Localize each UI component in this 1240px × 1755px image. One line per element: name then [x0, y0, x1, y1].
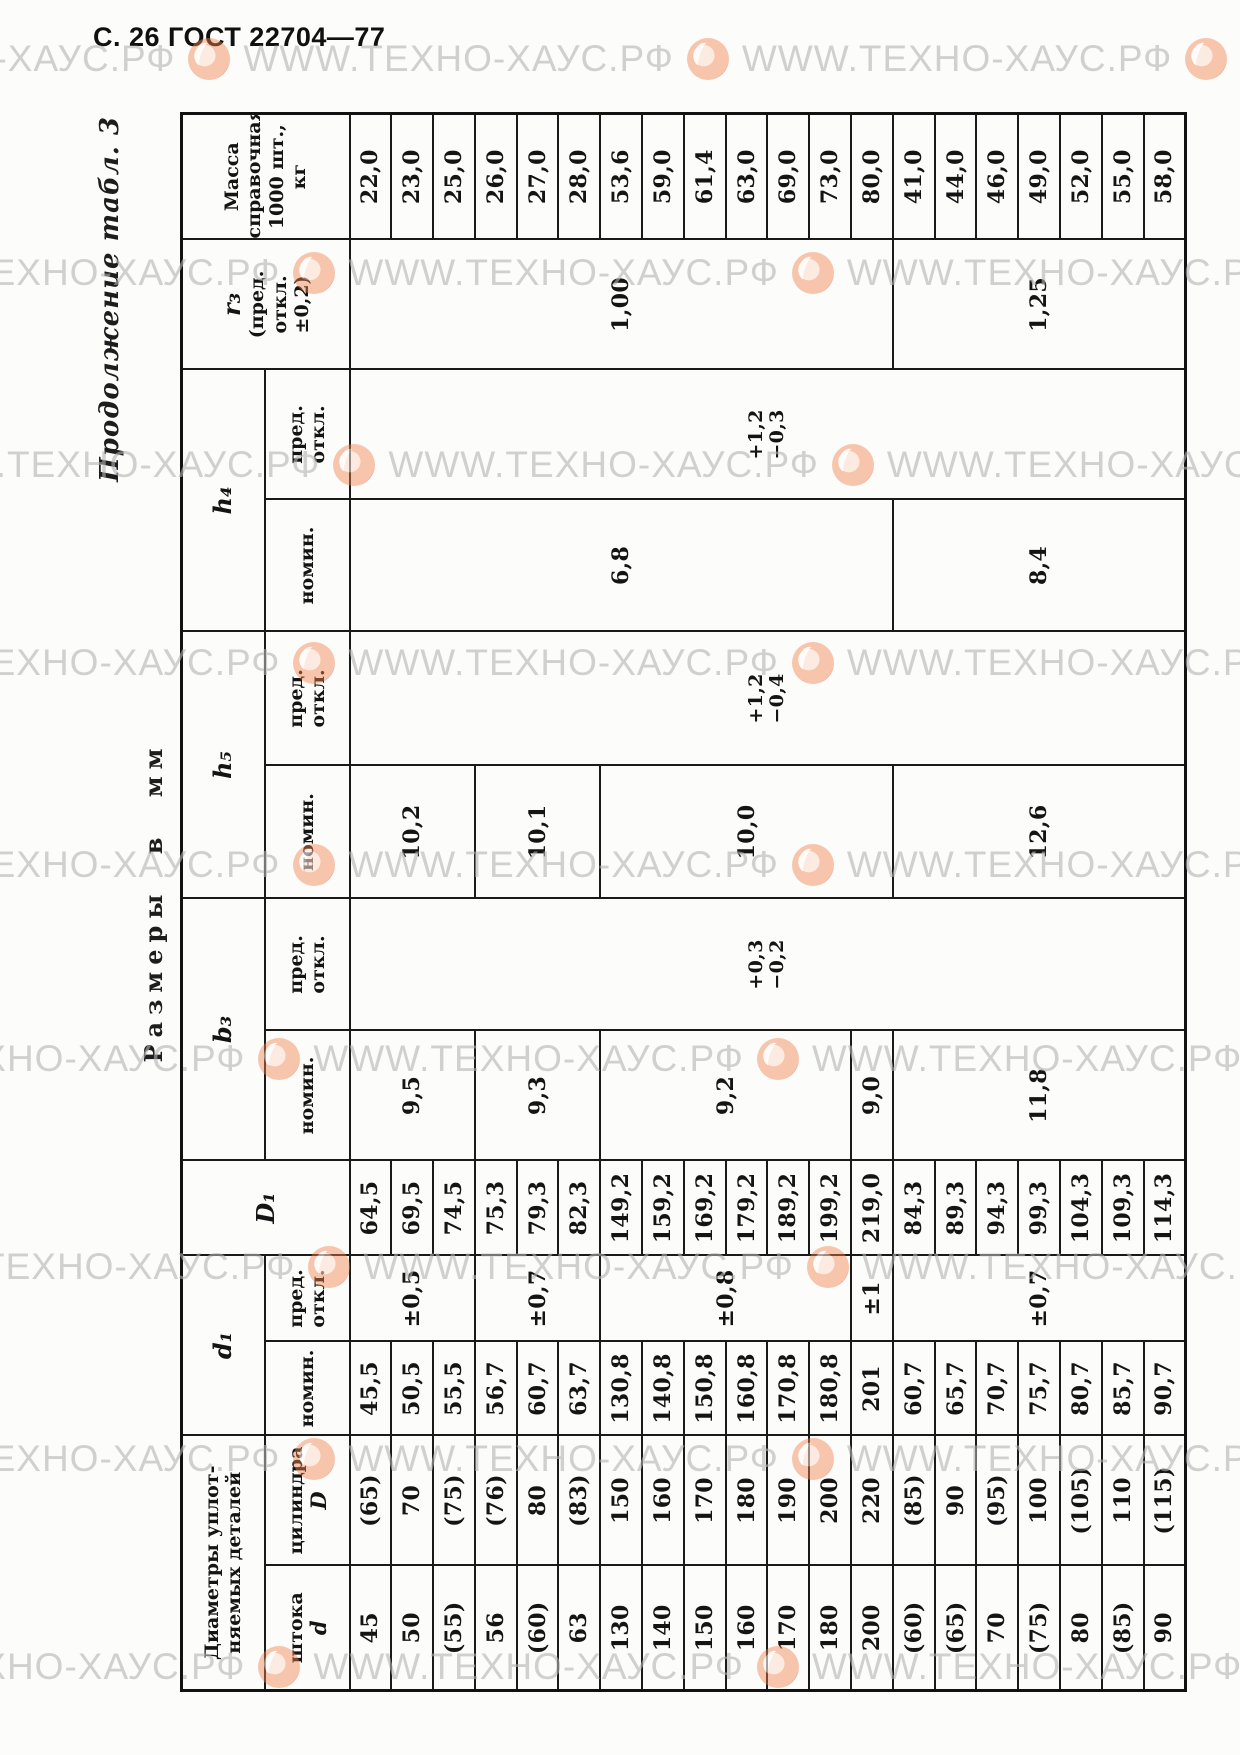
col-header-d1: d₁ — [182, 1255, 265, 1435]
cell-D1: 159,2 — [642, 1160, 684, 1255]
cell-d1: 90,7 — [1144, 1341, 1186, 1435]
tolerance-value: +1,2−0,3 — [746, 409, 789, 459]
cell-D: (65) — [350, 1435, 392, 1565]
col-header-mass-line: кг — [288, 115, 310, 239]
cell-mass: 25,0 — [433, 113, 475, 239]
cell-d: 200 — [851, 1566, 893, 1691]
dimensions-table: Диаметры уплот-няемых деталейd₁D₁b₃h₅h₄r… — [180, 112, 1187, 1692]
techno-haus-logo-icon — [1185, 38, 1227, 80]
cell-d: 130 — [600, 1566, 642, 1691]
col-subheader-b3_tol-line: пред. — [285, 899, 307, 1029]
cell-d1: 75,7 — [1018, 1341, 1060, 1435]
cell-D: 200 — [809, 1435, 851, 1565]
cell-D: 100 — [1018, 1435, 1060, 1565]
col-header-b3-line: b₃ — [209, 899, 237, 1159]
cell-D: (115) — [1144, 1435, 1186, 1565]
cell-D: 150 — [600, 1435, 642, 1565]
col-subheader-h4_tol: пред.откл. — [265, 369, 350, 499]
cell-d: (60) — [893, 1566, 935, 1691]
cell-mass: 53,6 — [600, 113, 642, 239]
cell-mass: 73,0 — [809, 113, 851, 239]
cell-b3_nom: 9,5 — [350, 1030, 475, 1160]
cell-D: 160 — [642, 1435, 684, 1565]
cell-mass: 41,0 — [893, 113, 935, 239]
cell-D1: 199,2 — [809, 1160, 851, 1255]
cell-D1: 89,3 — [935, 1160, 977, 1255]
cell-d: 180 — [809, 1566, 851, 1691]
dimensions-table-mount: Диаметры уплот-няемых деталейd₁D₁b₃h₅h₄r… — [180, 112, 1187, 1692]
col-header-h4-line: h₄ — [209, 370, 237, 630]
cell-h4_nom: 6,8 — [350, 499, 893, 631]
col-header-h4: h₄ — [182, 369, 265, 631]
tolerance-line: +1,2 — [746, 673, 767, 723]
cell-d1_tol: ±0,7 — [893, 1255, 1186, 1341]
cell-d1: 170,8 — [767, 1341, 809, 1435]
cell-d1: 130,8 — [600, 1341, 642, 1435]
cell-r3: 1,00 — [350, 239, 893, 369]
cell-d: 50 — [391, 1566, 433, 1691]
cell-d1: 201 — [851, 1341, 893, 1435]
cell-D1: 219,0 — [851, 1160, 893, 1255]
cell-d: 63 — [558, 1566, 600, 1691]
cell-mass: 46,0 — [976, 113, 1018, 239]
cell-d1: 80,7 — [1060, 1341, 1102, 1435]
col-subheader-D-line: цилиндра — [285, 1436, 307, 1564]
cell-mass: 52,0 — [1060, 113, 1102, 239]
tolerance-line: −0,3 — [767, 409, 788, 459]
cell-d1: 60,7 — [893, 1341, 935, 1435]
cell-D1: 99,3 — [1018, 1160, 1060, 1255]
cell-h4_nom: 8,4 — [893, 499, 1186, 631]
cell-mass: 61,4 — [684, 113, 726, 239]
cell-d1: 45,5 — [350, 1341, 392, 1435]
cell-D: 220 — [851, 1435, 893, 1565]
cell-D1: 75,3 — [475, 1160, 517, 1255]
cell-b3_nom: 9,0 — [851, 1030, 893, 1160]
col-header-h5: h₅ — [182, 631, 265, 898]
col-subheader-h5_tol-line: пред. — [285, 632, 307, 764]
col-header-mass-line: Масса — [221, 115, 243, 239]
col-subheader-b3_tol: пред.откл. — [265, 898, 350, 1030]
cell-b3_nom: 9,2 — [600, 1030, 851, 1160]
col-subheader-h4_nom-line: номин. — [296, 500, 318, 630]
col-header-r3-line: ±0,2) — [291, 240, 313, 368]
table-row: 45(65)45,5±0,564,59,5+0,3−0,210,2+1,2−0,… — [350, 113, 392, 1690]
cell-b3_nom: 11,8 — [893, 1030, 1186, 1160]
cell-D1: 149,2 — [600, 1160, 642, 1255]
tolerance-value: +0,3−0,2 — [746, 939, 789, 989]
col-subheader-d1-line: номин. — [296, 1342, 318, 1434]
cell-d1: 50,5 — [391, 1341, 433, 1435]
cell-D: 190 — [767, 1435, 809, 1565]
cell-d1: 70,7 — [976, 1341, 1018, 1435]
cell-D: (75) — [433, 1435, 475, 1565]
col-subheader-b3_nom: номин. — [265, 1030, 350, 1160]
cell-D1: 109,3 — [1102, 1160, 1144, 1255]
col-subheader-D: цилиндраD — [265, 1435, 350, 1565]
cell-d1: 55,5 — [433, 1341, 475, 1435]
page-header: С. 26 ГОСТ 22704—77 — [93, 22, 385, 53]
col-header-r3-line: (пред. — [246, 240, 268, 368]
col-subheader-d: штокаd — [265, 1566, 350, 1691]
watermark-text: WWW.ТЕХНО-ХАУС.РФ — [742, 38, 1172, 79]
techno-haus-logo-icon — [687, 38, 729, 80]
col-subheader-h5_nom: номин. — [265, 765, 350, 898]
col-subheader-h4_tol-line: пред. — [285, 370, 307, 498]
col-header-b3: b₃ — [182, 898, 265, 1160]
col-header-mass-line: справочная — [243, 115, 265, 239]
col-subheader-d-line: d — [308, 1567, 329, 1690]
cell-d1: 85,7 — [1102, 1341, 1144, 1435]
cell-d1: 63,7 — [558, 1341, 600, 1435]
col-header-diameters-line: няемых деталей — [223, 1436, 245, 1689]
cell-h4_tol: +1,2−0,3 — [350, 369, 1186, 499]
tolerance-line: −0,2 — [767, 939, 788, 989]
cell-d1: 150,8 — [684, 1341, 726, 1435]
cell-d: 140 — [642, 1566, 684, 1691]
scanned-gost-page: С. 26 ГОСТ 22704—77 Продолжение табл. 3 … — [0, 0, 1240, 1755]
cell-d1_tol: ±0,8 — [600, 1255, 851, 1341]
cell-d1_tol: ±0,5 — [350, 1255, 475, 1341]
cell-d1: 60,7 — [517, 1341, 559, 1435]
cell-D: (83) — [558, 1435, 600, 1565]
cell-r3: 1,25 — [893, 239, 1186, 369]
cell-mass: 28,0 — [558, 113, 600, 239]
cell-D1: 74,5 — [433, 1160, 475, 1255]
col-subheader-d-line: штока — [285, 1567, 307, 1690]
cell-h5_tol: +1,2−0,4 — [350, 631, 1186, 765]
cell-D: 90 — [935, 1435, 977, 1565]
cell-d: 45 — [350, 1566, 392, 1691]
col-subheader-h4_tol-line: откл. — [307, 370, 329, 498]
cell-d1: 56,7 — [475, 1341, 517, 1435]
col-header-diameters: Диаметры уплот-няемых деталей — [182, 1435, 265, 1690]
cell-d1: 140,8 — [642, 1341, 684, 1435]
cell-D: 170 — [684, 1435, 726, 1565]
col-subheader-D-line: D — [308, 1436, 329, 1564]
cell-D: 70 — [391, 1435, 433, 1565]
cell-D: (95) — [976, 1435, 1018, 1565]
cell-D: (76) — [475, 1435, 517, 1565]
cell-D1: 189,2 — [767, 1160, 809, 1255]
col-subheader-d1_tol-line: пред. — [285, 1256, 307, 1340]
col-subheader-d1_tol-line: откл. — [307, 1256, 329, 1340]
cell-d: (75) — [1018, 1566, 1060, 1691]
col-header-d1-line: d₁ — [209, 1256, 237, 1434]
cell-d: (85) — [1102, 1566, 1144, 1691]
cell-d1_tol: ±1 — [851, 1255, 893, 1341]
cell-mass: 63,0 — [726, 113, 768, 239]
cell-d: 170 — [767, 1566, 809, 1691]
col-subheader-d1_tol: пред.откл. — [265, 1255, 350, 1341]
cell-D1: 79,3 — [517, 1160, 559, 1255]
col-subheader-h4_nom: номин. — [265, 499, 350, 631]
cell-d1: 65,7 — [935, 1341, 977, 1435]
cell-D: 180 — [726, 1435, 768, 1565]
cell-d1: 180,8 — [809, 1341, 851, 1435]
cell-d: 150 — [684, 1566, 726, 1691]
cell-d1_tol: ±0,7 — [475, 1255, 600, 1341]
cell-d: (60) — [517, 1566, 559, 1691]
cell-D: 80 — [517, 1435, 559, 1565]
table-continuation-note: Продолжение табл. 3 — [95, 116, 125, 482]
cell-b3_nom: 9,3 — [475, 1030, 600, 1160]
col-subheader-d1: номин. — [265, 1341, 350, 1435]
cell-mass: 44,0 — [935, 113, 977, 239]
cell-mass: 69,0 — [767, 113, 809, 239]
units-note: Размеры в мм — [139, 112, 168, 1692]
cell-mass: 58,0 — [1144, 113, 1186, 239]
cell-b3_tol: +0,3−0,2 — [350, 898, 1186, 1030]
col-header-mass: Массасправочная1000 шт.,кг — [182, 113, 350, 239]
cell-D1: 94,3 — [976, 1160, 1018, 1255]
tolerance-value: +1,2−0,4 — [746, 673, 789, 723]
col-header-mass-line: 1000 шт., — [266, 115, 288, 239]
tolerance-line: −0,4 — [767, 673, 788, 723]
cell-mass: 80,0 — [851, 113, 893, 239]
cell-D: 110 — [1102, 1435, 1144, 1565]
cell-d: 70 — [976, 1566, 1018, 1691]
tolerance-line: +1,2 — [746, 409, 767, 459]
cell-h5_nom: 10,0 — [600, 765, 893, 898]
cell-D1: 82,3 — [558, 1160, 600, 1255]
cell-h5_nom: 10,2 — [350, 765, 475, 898]
cell-D1: 84,3 — [893, 1160, 935, 1255]
tolerance-line: +0,3 — [746, 939, 767, 989]
col-header-D1: D₁ — [182, 1160, 350, 1255]
cell-D1: 104,3 — [1060, 1160, 1102, 1255]
col-header-D1-line: D₁ — [252, 1161, 280, 1254]
cell-D1: 114,3 — [1144, 1160, 1186, 1255]
cell-D: (85) — [893, 1435, 935, 1565]
cell-d: 56 — [475, 1566, 517, 1691]
cell-mass: 22,0 — [350, 113, 392, 239]
cell-d1: 160,8 — [726, 1341, 768, 1435]
cell-D1: 64,5 — [350, 1160, 392, 1255]
col-subheader-h5_tol: пред.откл. — [265, 631, 350, 765]
cell-mass: 49,0 — [1018, 113, 1060, 239]
cell-D: (105) — [1060, 1435, 1102, 1565]
cell-h5_nom: 10,1 — [475, 765, 600, 898]
cell-D1: 69,5 — [391, 1160, 433, 1255]
cell-d: (65) — [935, 1566, 977, 1691]
col-header-r3-line: r₃ — [218, 240, 246, 368]
cell-mass: 26,0 — [475, 113, 517, 239]
col-header-r3: r₃(пред.откл.±0,2) — [182, 239, 350, 369]
col-subheader-h5_tol-line: откл. — [307, 632, 329, 764]
col-subheader-h5_nom-line: номин. — [296, 766, 318, 897]
cell-D1: 169,2 — [684, 1160, 726, 1255]
cell-d: (55) — [433, 1566, 475, 1691]
cell-D1: 179,2 — [726, 1160, 768, 1255]
cell-mass: 27,0 — [517, 113, 559, 239]
col-header-r3-line: откл. — [269, 240, 291, 368]
cell-d: 80 — [1060, 1566, 1102, 1691]
cell-d: 90 — [1144, 1566, 1186, 1691]
col-subheader-b3_nom-line: номин. — [296, 1031, 318, 1159]
cell-mass: 59,0 — [642, 113, 684, 239]
col-subheader-b3_tol-line: откл. — [307, 899, 329, 1029]
col-header-h5-line: h₅ — [209, 632, 237, 897]
cell-d: 160 — [726, 1566, 768, 1691]
cell-mass: 23,0 — [391, 113, 433, 239]
rotated-table-area: Продолжение табл. 3 Размеры в мм Диаметр… — [95, 112, 1185, 1692]
cell-mass: 55,0 — [1102, 113, 1144, 239]
cell-h5_nom: 12,6 — [893, 765, 1186, 898]
col-header-diameters-line: Диаметры уплот- — [201, 1436, 223, 1689]
